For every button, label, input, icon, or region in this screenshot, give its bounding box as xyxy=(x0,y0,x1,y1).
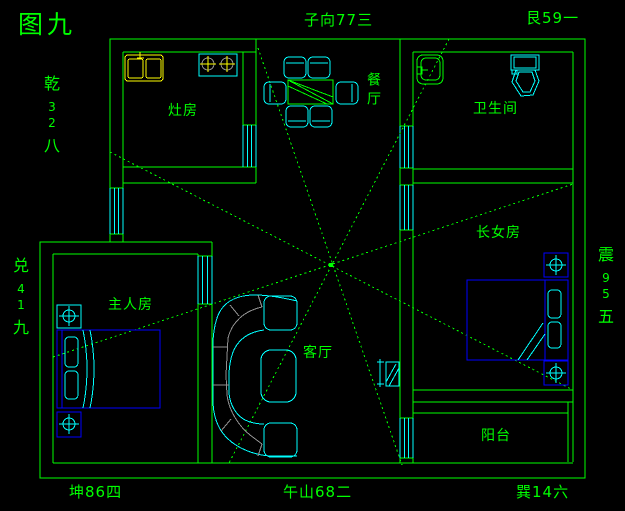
window-central-upper xyxy=(400,126,413,168)
toilet xyxy=(511,55,539,96)
window-central-middle xyxy=(400,185,413,230)
compass-nw-digit: 2 xyxy=(41,116,63,130)
figure-title: 图九 xyxy=(18,12,76,37)
compass-w-char: 九 xyxy=(10,314,32,338)
house-center-point xyxy=(329,263,333,267)
bathroom-bottom-wall xyxy=(413,169,573,183)
washbasin xyxy=(417,55,443,84)
mattress-dots xyxy=(472,288,536,350)
master-bed xyxy=(57,330,160,408)
daughter-nightstands xyxy=(544,253,568,385)
tv-screen xyxy=(386,362,399,386)
mattress-dots xyxy=(96,336,156,402)
compass-e-char: 五 xyxy=(595,303,617,327)
pillow xyxy=(65,371,78,399)
pillow xyxy=(65,337,78,367)
window-master-living xyxy=(198,256,212,304)
compass-e-digit: 5 xyxy=(595,287,617,301)
pillow xyxy=(548,290,561,318)
pillow xyxy=(548,322,561,348)
sofa xyxy=(213,295,297,457)
label-kitchen: 灶房 xyxy=(168,104,198,118)
chair xyxy=(264,82,286,104)
compass-nw-char: 八 xyxy=(41,132,63,156)
label-dining: 餐厅 xyxy=(366,72,380,110)
window-left-wall xyxy=(110,188,123,234)
compass-top-right: 艮59一 xyxy=(526,11,579,26)
tv-mount xyxy=(377,359,384,387)
compass-e-digit: 9 xyxy=(595,271,617,285)
floor-plan-drawing xyxy=(0,0,625,511)
window-balcony xyxy=(400,418,413,458)
compass-east-column: 震 9 5 五 xyxy=(595,241,617,333)
compass-northwest-column: 乾 3 2 八 xyxy=(41,70,63,162)
label-bathroom: 卫生间 xyxy=(473,102,518,116)
kitchen-sink xyxy=(125,52,163,81)
chair xyxy=(286,106,308,127)
blanket-fold xyxy=(518,323,545,360)
compass-west-column: 兑 4 1 九 xyxy=(10,252,32,344)
compass-bottom-center: 午山68二 xyxy=(283,485,352,500)
compass-e-char: 震 xyxy=(595,241,617,265)
compass-nw-char: 乾 xyxy=(41,70,63,94)
lamp-symbol xyxy=(546,255,566,383)
compass-w-char: 兑 xyxy=(10,252,32,276)
daughter-bed xyxy=(467,280,568,360)
compass-nw-digit: 3 xyxy=(41,100,63,114)
window-kitchen xyxy=(243,125,256,167)
armrest xyxy=(264,423,297,457)
armrest xyxy=(264,296,297,330)
daughter-bottom-wall xyxy=(413,390,573,402)
label-eldest-daughter-room: 长女房 xyxy=(476,226,521,240)
sector-line-4 xyxy=(53,184,573,357)
coffee-table xyxy=(261,350,296,402)
label-living-room: 客厅 xyxy=(303,346,333,360)
tv xyxy=(377,359,399,387)
chair xyxy=(310,106,332,127)
floor-plan-screen: 图九 乾 3 2 八 兑 4 1 九 震 9 5 五 子向77三 艮59一 坤8… xyxy=(0,0,625,511)
master-block-walls xyxy=(40,242,212,463)
compass-w-digit: 1 xyxy=(10,298,32,312)
compass-bottom-right: 巽14六 xyxy=(516,485,569,500)
blanket-fold xyxy=(83,330,94,408)
sector-line-3 xyxy=(110,152,573,390)
compass-bottom-left: 坤86四 xyxy=(69,485,122,500)
master-living-wall xyxy=(198,242,212,463)
dining-set xyxy=(264,57,358,127)
label-master-bedroom: 主人房 xyxy=(108,298,153,312)
chair xyxy=(284,57,306,78)
stove xyxy=(199,54,237,76)
chair xyxy=(308,57,330,78)
compass-top-center: 子向77三 xyxy=(304,13,373,28)
label-balcony: 阳台 xyxy=(481,429,511,443)
central-wall xyxy=(400,39,413,463)
compass-w-digit: 4 xyxy=(10,282,32,296)
chair xyxy=(336,82,358,104)
